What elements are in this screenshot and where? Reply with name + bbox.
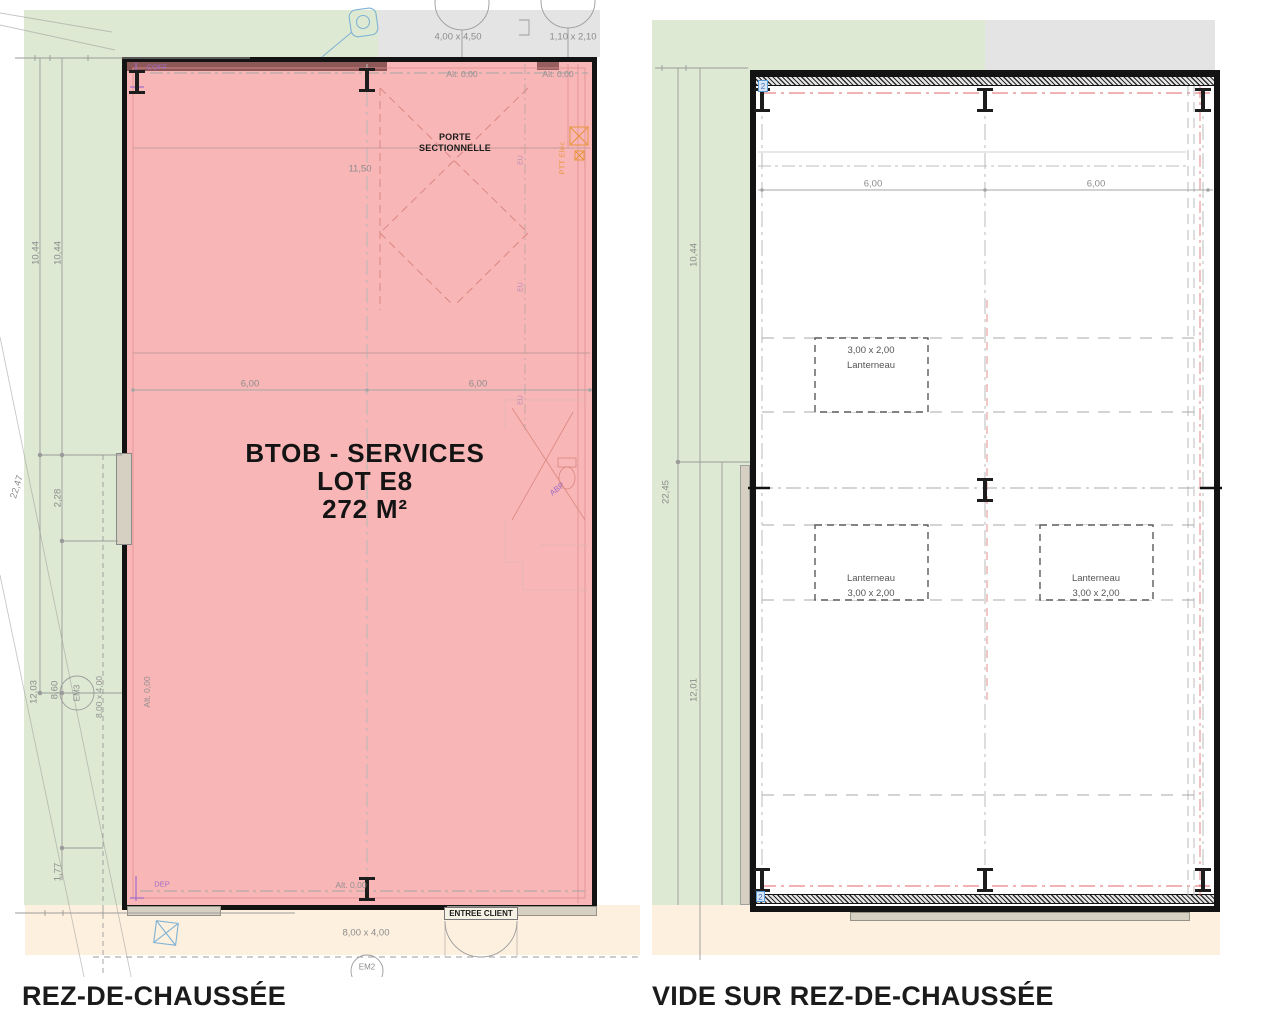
lanterneau-1-size: 3,00 x 2,00 (847, 343, 895, 358)
dim-600-right-b: 6,00 (1087, 179, 1106, 190)
coff-label: COFF (147, 63, 167, 72)
room-label: BTOB - SERVICES LOT E8 272 M² (195, 439, 535, 523)
dim-600-left-a: 6,00 (241, 379, 260, 390)
porte-line1: PORTE (419, 132, 491, 143)
alt-label-top-b: Alt. 0,00 (542, 69, 573, 79)
room-area: 272 M² (195, 495, 535, 523)
dim-600-left-b: 6,00 (469, 379, 488, 390)
dim-1044-b: 10,44 (53, 241, 64, 265)
zone-green-right-strip (652, 20, 750, 905)
dim-1203: 12,03 (29, 680, 40, 704)
lanterneau-1-name: Lanterneau (847, 358, 895, 373)
dim-600-right-a: 6,00 (864, 179, 883, 190)
lanterneau-2-name: Lanterneau (847, 571, 895, 586)
lanterneau-3-label: Lanterneau 3,00 x 2,00 (1072, 571, 1120, 601)
porte-line2: SECTIONNELLE (419, 143, 491, 154)
dim-1150: 11,50 (348, 164, 371, 175)
right-plan-outline (750, 70, 1220, 912)
dim-1044-a: 10,44 (31, 241, 42, 265)
lanterneau-3-name: Lanterneau (1072, 571, 1120, 586)
floor-plan-sheet: 4,00 x 4,50 1,10 x 2,10 Alt. 0,00 Alt. 0… (0, 0, 1280, 1026)
lanterneau-2-size: 3,00 x 2,00 (847, 586, 895, 601)
right-sill (850, 912, 1190, 921)
alt-label-top-a: Alt. 0,00 (446, 69, 477, 79)
room-lot: LOT E8 (195, 467, 535, 495)
dim-2245: 22,45 (661, 480, 672, 504)
ptt-elec-label: PTT Elec (560, 142, 567, 175)
dim-top-door: 4,00 x 4,50 (434, 32, 481, 43)
lanterneau-2-label: Lanterneau 3,00 x 2,00 (847, 571, 895, 601)
zone-grey-right-top (985, 20, 1215, 70)
lanterneau-3-size: 3,00 x 2,00 (1072, 586, 1120, 601)
dep-label: DEP (154, 880, 169, 889)
right-plan-title: VIDE SUR REZ-DE-CHAUSSÉE (652, 981, 1054, 1012)
alt-label-bottom: Alt. 0,00 (335, 880, 366, 890)
lanterneau-1-label: 3,00 x 2,00 Lanterneau (847, 343, 895, 373)
zone-green-left-strip (24, 10, 122, 905)
revision-marker-bottom: 2 (756, 891, 765, 902)
right-plan-bottom-wall-hatch (756, 894, 1214, 904)
dim-em-bottom: 8,00 x 4,00 (342, 928, 389, 939)
revision-marker-top: 2 (758, 80, 768, 92)
eu-label-3: EU (518, 395, 525, 405)
entree-client-label: ENTREE CLIENT (444, 907, 518, 920)
eu-label-1: EU (518, 155, 525, 165)
right-plan-top-wall-hatch (756, 76, 1214, 86)
alt-label-left: Alt. 0,00 (142, 676, 152, 707)
dim-em-left: 8,00 x 4,00 (94, 676, 104, 718)
dim-228: 2,28 (53, 489, 64, 508)
left-sill-west (127, 906, 221, 916)
dim-1044-right: 10,44 (689, 243, 700, 267)
dim-top-door2: 1,10 x 2,10 (549, 32, 596, 43)
eu-label-2: EU (518, 282, 525, 292)
em3-ref: EM3 (73, 685, 82, 701)
dim-860: 8,60 (50, 681, 61, 700)
right-plan-edge-band (740, 465, 750, 905)
porte-sectionnelle-label: PORTE SECTIONNELLE (419, 132, 491, 154)
left-plan-title: REZ-DE-CHAUSSÉE (22, 981, 286, 1012)
em2-ref: EM2 (359, 963, 375, 972)
dim-1201: 12,01 (689, 678, 700, 702)
left-wall-opening (116, 453, 132, 545)
dim-177: 1,77 (53, 863, 64, 882)
room-name: BTOB - SERVICES (195, 439, 535, 467)
